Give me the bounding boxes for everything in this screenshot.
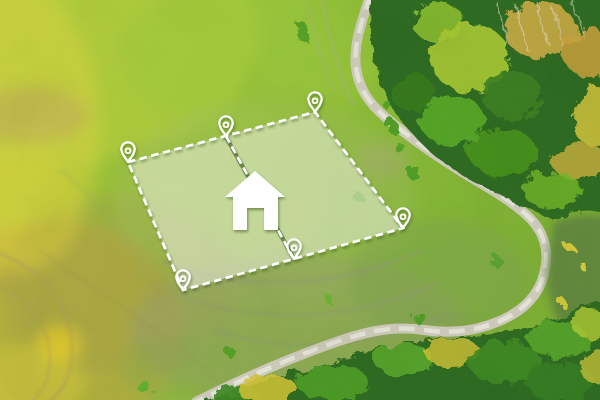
aerial-photo-stage xyxy=(0,0,600,400)
aerial-photo xyxy=(0,0,600,400)
